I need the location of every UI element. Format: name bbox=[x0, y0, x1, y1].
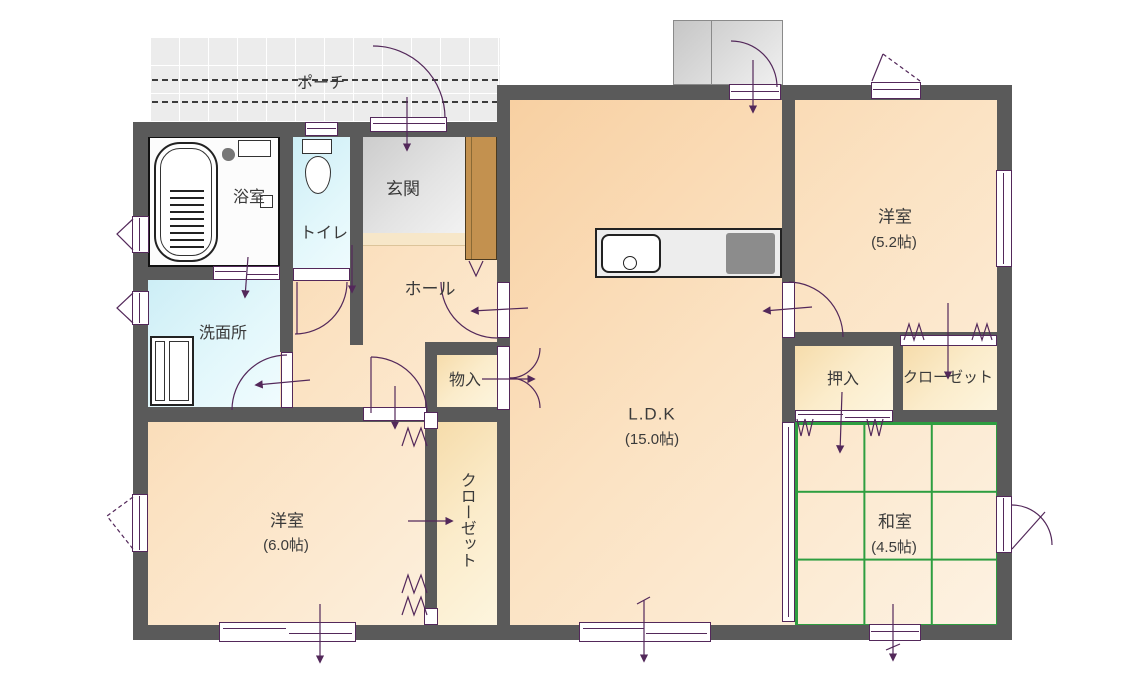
shoe-cabinet-edge bbox=[471, 137, 472, 259]
vanity-basin bbox=[169, 341, 189, 401]
western52-top-window bbox=[871, 82, 921, 99]
kitchen-faucet bbox=[623, 256, 637, 270]
casement-mark-western60-window bbox=[107, 497, 133, 549]
label-ldk-name: L.D.K bbox=[628, 406, 676, 425]
door-japanese-sliding bbox=[782, 422, 795, 622]
door-western52 bbox=[782, 282, 795, 338]
washroom-left-window bbox=[132, 291, 149, 325]
toilet-window bbox=[305, 122, 338, 136]
door-oshiire-sliding bbox=[795, 410, 893, 422]
label-western52-size: (5.2帖) bbox=[871, 235, 917, 252]
label-closet-middle: クローゼット bbox=[457, 472, 475, 568]
wall-hall-south bbox=[133, 407, 510, 422]
shower-head bbox=[222, 148, 235, 161]
japanese-bottom-window bbox=[869, 624, 921, 641]
wall-west bbox=[133, 122, 148, 640]
wall-east bbox=[997, 85, 1012, 640]
awning-mark-washroom-window bbox=[117, 293, 133, 323]
wall-ldk-west-c bbox=[497, 408, 510, 625]
wall-ldk-east-b bbox=[782, 338, 795, 422]
bathtub-grate bbox=[170, 190, 204, 252]
back-door-steps bbox=[673, 20, 783, 85]
western52-right-window bbox=[996, 170, 1012, 267]
awning-mark-western52-top bbox=[872, 54, 883, 81]
door-western60 bbox=[363, 407, 427, 421]
bath-counter bbox=[238, 140, 271, 157]
vanity-door bbox=[155, 341, 165, 401]
japanese-right-door bbox=[996, 496, 1012, 553]
porch-step-line bbox=[152, 101, 498, 103]
vanity-unit bbox=[150, 336, 194, 406]
toilet-bowl bbox=[305, 156, 331, 194]
awning-mark-bathroom-window bbox=[117, 219, 133, 250]
door-toilet bbox=[293, 268, 350, 281]
step-divider bbox=[711, 21, 712, 86]
label-toilet: トイレ bbox=[300, 225, 348, 243]
wall-closet-column-west bbox=[425, 342, 437, 625]
door-arc-japanese-right bbox=[1012, 505, 1052, 545]
ldk-bottom-window bbox=[579, 622, 711, 642]
awning-mark-western52-top-dash bbox=[883, 54, 920, 81]
back-door bbox=[729, 84, 781, 100]
door-hall-ldk bbox=[497, 282, 510, 338]
label-hall: ホール bbox=[405, 281, 456, 300]
wall-oshiire-closet bbox=[893, 346, 903, 410]
kitchen-counter bbox=[595, 228, 782, 278]
label-western52-name: 洋室 bbox=[878, 209, 912, 228]
wall-toilet-entrance bbox=[350, 137, 363, 345]
toilet-room bbox=[293, 137, 350, 280]
entrance-step bbox=[363, 233, 465, 246]
label-oshiire: 押入 bbox=[827, 371, 859, 389]
label-western60-size: (6.0帖) bbox=[263, 538, 309, 555]
label-entrance: 玄関 bbox=[386, 181, 420, 200]
label-ldk-size: (15.0帖) bbox=[625, 432, 679, 449]
door-washroom bbox=[281, 352, 293, 408]
shoe-cabinet bbox=[465, 136, 497, 260]
kitchen-stove bbox=[726, 233, 775, 274]
door-closet-middle-top bbox=[424, 412, 438, 429]
entrance-door bbox=[370, 117, 447, 132]
door-closet-middle-bottom bbox=[424, 608, 438, 625]
western60-bottom-window bbox=[219, 622, 356, 642]
wall-closet-right-south bbox=[893, 410, 997, 422]
label-japanese-name: 和室 bbox=[878, 514, 912, 533]
washroom bbox=[148, 280, 280, 407]
bathtub bbox=[154, 142, 218, 262]
label-storage: 物入 bbox=[449, 372, 481, 390]
door-closet-right bbox=[900, 335, 997, 346]
label-japanese-size: (4.5帖) bbox=[871, 540, 917, 557]
label-closet-right: クローゼット bbox=[903, 370, 993, 387]
bathroom-left-window bbox=[132, 216, 149, 253]
door-leaf-japanese-right bbox=[1012, 512, 1045, 549]
toilet-tank bbox=[302, 139, 332, 154]
wall-bath-toilet bbox=[280, 137, 293, 352]
floor-plan: ポーチ 浴室 トイレ 玄関 ホール 洗面所 物入 L.D.K (15.0帖) 洋… bbox=[0, 0, 1146, 676]
western60-left-window bbox=[132, 494, 148, 552]
label-bathroom: 浴室 bbox=[233, 189, 265, 207]
wall-ldk-east-a bbox=[782, 100, 795, 282]
tick-japanese-window bbox=[886, 644, 900, 650]
door-storage bbox=[497, 346, 510, 410]
label-porch: ポーチ bbox=[297, 75, 345, 93]
label-western60-name: 洋室 bbox=[270, 513, 304, 532]
label-washroom: 洗面所 bbox=[199, 325, 247, 343]
door-bathroom-sliding bbox=[213, 266, 280, 280]
wall-ldk-west-a bbox=[497, 100, 510, 282]
